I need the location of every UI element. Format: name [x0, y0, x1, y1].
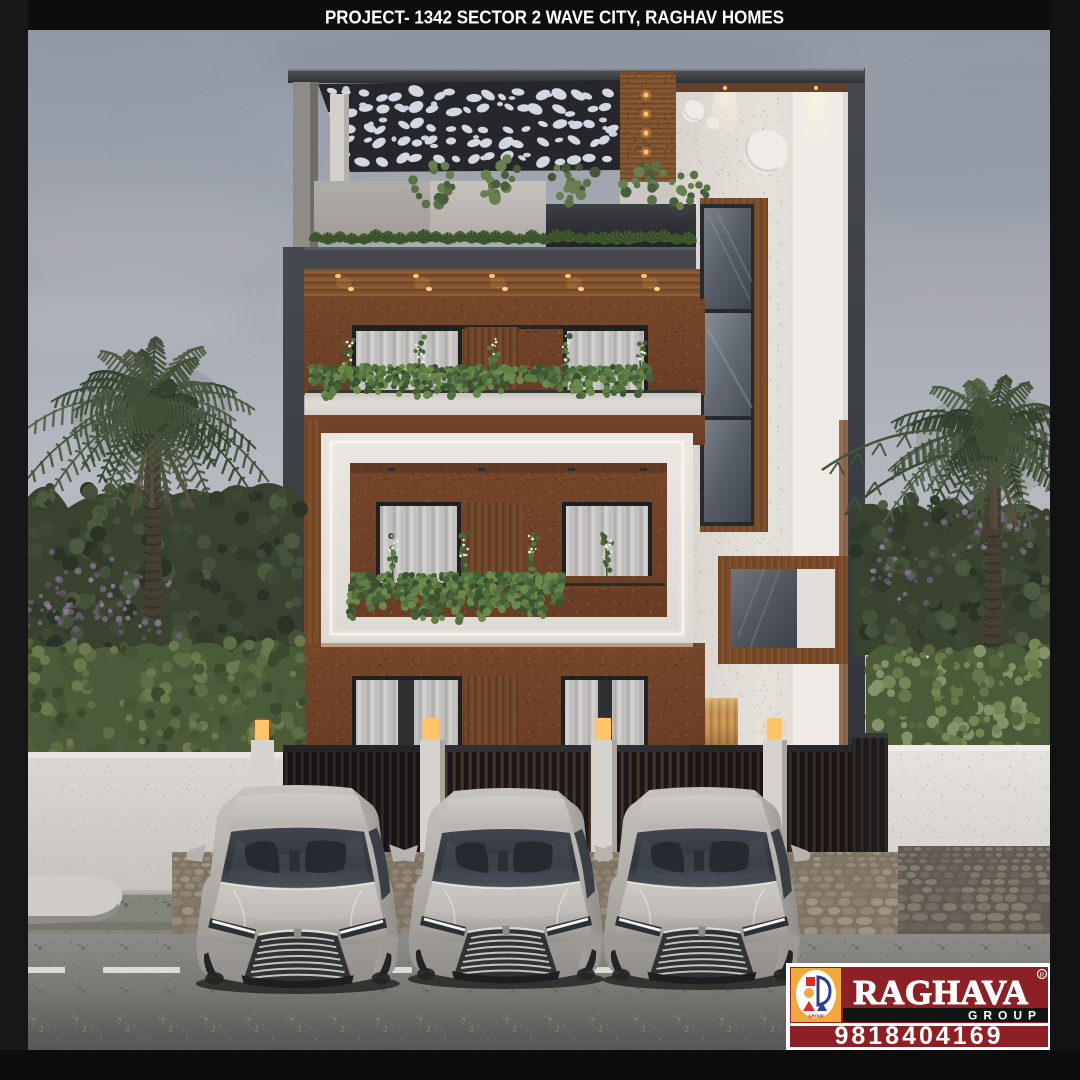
svg-text:R: R	[1040, 972, 1045, 979]
svg-text:PROJECT- 1342 SECTOR 2 WAVE CI: PROJECT- 1342 SECTOR 2 WAVE CITY, RAGHAV…	[325, 7, 784, 28]
svg-text:GROUP: GROUP	[968, 1009, 1042, 1023]
svg-text:GROUP: GROUP	[808, 1014, 824, 1019]
svg-text:RAGHAVA: RAGHAVA	[853, 973, 1029, 1012]
svg-text:9818404169: 9818404169	[834, 1022, 1003, 1050]
